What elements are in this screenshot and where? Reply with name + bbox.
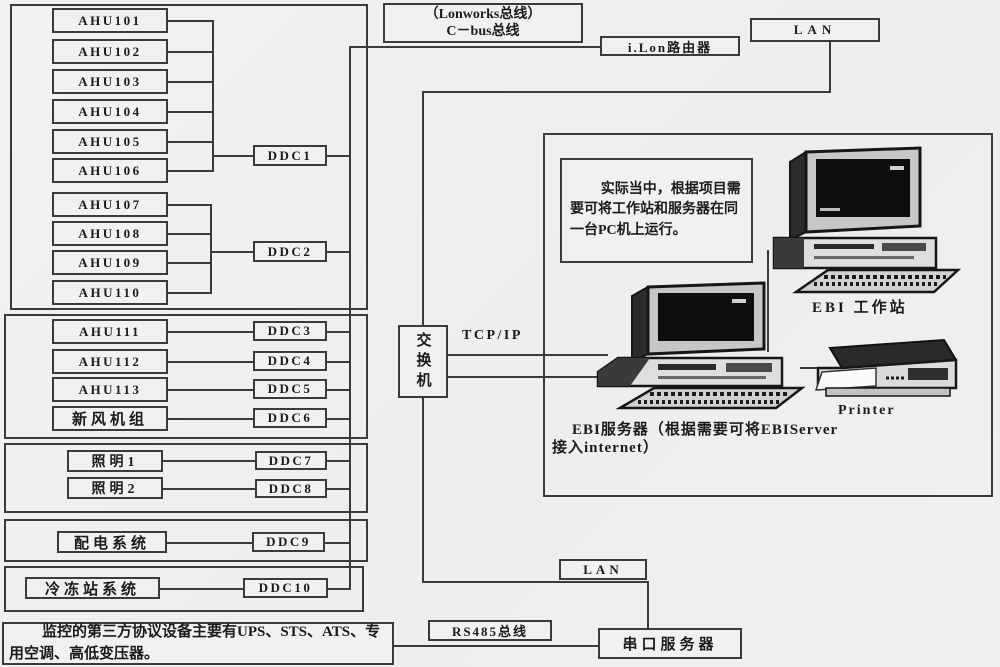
ilon-router-box: i.Lon路由器 — [600, 36, 740, 56]
cbus-label-line2: C－bus总线 — [446, 23, 519, 41]
collector-line-ddc2 — [210, 204, 212, 294]
tcpip-line-1 — [448, 354, 608, 356]
ilon-router-label: i.Lon路由器 — [628, 37, 712, 56]
ddc2-feed-line — [210, 251, 253, 253]
lan-drop-line — [829, 42, 831, 93]
rs485-line — [394, 645, 598, 647]
ahu103-box: AHU103 — [52, 69, 168, 94]
ddc8-label: DDC8 — [269, 481, 314, 497]
ahu103-label: AHU103 — [78, 74, 141, 90]
lonworks-bus-line — [349, 46, 351, 589]
ahu109-label: AHU109 — [78, 255, 141, 271]
connector-line — [327, 460, 351, 462]
connector-line — [168, 331, 253, 333]
third-party-note-text: 监控的第三方协议设备主要有UPS、STS、ATS、专用空调、高低变压器。 — [9, 622, 387, 666]
rs485-bus-box: RS485总线 — [428, 620, 552, 641]
ddc5-label: DDC5 — [268, 381, 313, 397]
connector-line — [327, 389, 351, 391]
workstation-label: EBI 工作站 — [812, 296, 908, 317]
power-distribution-label: 配电系统 — [74, 532, 150, 553]
tcpip-label: TCP/IP — [462, 328, 523, 344]
connector-line — [168, 389, 253, 391]
ahu106-box: AHU106 — [52, 158, 168, 183]
lan-bottom-box: LAN — [559, 559, 647, 580]
ddc1-box: DDC1 — [253, 145, 327, 166]
third-party-note-box: 监控的第三方协议设备主要有UPS、STS、ATS、专用空调、高低变压器。 — [2, 622, 394, 665]
ddc6-label: DDC6 — [268, 410, 313, 426]
ahu108-label: AHU108 — [78, 226, 141, 242]
printer-label: Printer — [838, 403, 896, 419]
ahu111-box: AHU111 — [52, 319, 168, 344]
connector-line — [328, 588, 351, 590]
ahu101-label: AHU101 — [78, 13, 141, 29]
printer-image — [812, 338, 960, 402]
connector-line — [168, 51, 212, 53]
connector-line — [160, 588, 243, 590]
connector-line — [163, 460, 255, 462]
connector-line — [168, 141, 212, 143]
lan-to-switch-line — [422, 91, 831, 93]
collector-line-ddc1 — [212, 20, 214, 172]
ddc1-feed-line — [212, 155, 253, 157]
lan-bottom-label: LAN — [583, 562, 622, 578]
ahu113-box: AHU113 — [52, 377, 168, 402]
serial-server-label: 串口服务器 — [622, 633, 717, 654]
ebi-server-image — [592, 282, 810, 410]
ddc2-label: DDC2 — [268, 244, 313, 260]
serial-server-drop-line — [647, 581, 649, 628]
ahu108-box: AHU108 — [52, 221, 168, 246]
fresh-air-unit-label: 新风机组 — [72, 408, 148, 429]
connector-line — [168, 418, 253, 420]
rs485-bus-label: RS485总线 — [452, 621, 528, 640]
power-distribution-box: 配电系统 — [57, 531, 167, 553]
connector-line — [327, 488, 351, 490]
ebi-workstation-image — [762, 146, 962, 294]
ddc6-box: DDC6 — [253, 408, 327, 428]
ddc10-label: DDC10 — [259, 580, 313, 596]
ahu112-box: AHU112 — [52, 349, 168, 374]
switch-label: 交换机 — [413, 332, 434, 392]
ahu101-box: AHU101 — [52, 8, 168, 33]
connector-line — [168, 20, 212, 22]
ahu105-box: AHU105 — [52, 129, 168, 154]
ddc1-label: DDC1 — [268, 148, 313, 164]
ahu106-label: AHU106 — [78, 163, 141, 179]
ddc8-box: DDC8 — [255, 479, 327, 498]
switch-box: 交换机 — [398, 325, 448, 398]
lonworks-bus-label-line1: （Lonworks总线） — [425, 6, 542, 24]
lan-top-box: LAN — [750, 18, 880, 42]
connector-line — [168, 204, 210, 206]
ddc9-label: DDC9 — [266, 534, 311, 550]
connector-line — [327, 331, 351, 333]
connector-line — [327, 418, 351, 420]
lighting1-box: 照明1 — [67, 450, 163, 472]
connector-line — [168, 292, 210, 294]
bus-to-ilon-line — [349, 46, 602, 48]
ahu104-box: AHU104 — [52, 99, 168, 124]
ahu110-box: AHU110 — [52, 280, 168, 305]
ddc1-bus-line — [327, 155, 351, 157]
connector-line — [168, 233, 210, 235]
connector-line — [168, 170, 212, 172]
lighting1-label: 照明1 — [92, 451, 139, 471]
ddc3-box: DDC3 — [253, 321, 327, 341]
connector-line — [168, 111, 212, 113]
connector-line — [325, 542, 351, 544]
bas-network-diagram: AHU101 AHU102 AHU103 AHU104 AHU105 AHU10… — [0, 0, 1000, 667]
ddc2-box: DDC2 — [253, 241, 327, 262]
chiller-plant-box: 冷冻站系统 — [25, 577, 160, 599]
lighting2-box: 照明2 — [67, 477, 163, 499]
ddc7-label: DDC7 — [269, 453, 314, 469]
ddc10-box: DDC10 — [243, 578, 328, 598]
connector-line — [163, 488, 255, 490]
ahu104-label: AHU104 — [78, 104, 141, 120]
ddc5-box: DDC5 — [253, 379, 327, 399]
ahu102-box: AHU102 — [52, 39, 168, 64]
serial-server-box: 串口服务器 — [598, 628, 742, 659]
lonworks-bus-box: （Lonworks总线） C－bus总线 — [383, 3, 583, 43]
ddc9-box: DDC9 — [252, 532, 325, 552]
ddc7-box: DDC7 — [255, 451, 327, 470]
chiller-plant-label: 冷冻站系统 — [45, 578, 140, 599]
connector-line — [168, 81, 212, 83]
ahu102-label: AHU102 — [78, 44, 141, 60]
connector-line — [168, 361, 253, 363]
ahu109-box: AHU109 — [52, 250, 168, 275]
deployment-note-text: 实际当中，根据项目需要可将工作站和服务器在同一台PC机上运行。 — [570, 180, 743, 241]
ahu110-label: AHU110 — [79, 285, 142, 301]
lighting2-label: 照明2 — [92, 478, 139, 498]
ddc2-bus-line — [327, 251, 351, 253]
ddc3-label: DDC3 — [268, 323, 313, 339]
ahu107-label: AHU107 — [78, 197, 141, 213]
connector-line — [168, 262, 210, 264]
ahu112-label: AHU112 — [79, 354, 142, 370]
fresh-air-unit-box: 新风机组 — [52, 406, 168, 431]
ahu107-box: AHU107 — [52, 192, 168, 217]
connector-line — [167, 542, 252, 544]
connector-line — [327, 361, 351, 363]
deployment-note-box: 实际当中，根据项目需要可将工作站和服务器在同一台PC机上运行。 — [560, 158, 753, 263]
server-caption-line2: 接入internet） — [552, 436, 659, 457]
ahu111-label: AHU111 — [79, 324, 141, 340]
bottom-lan-line — [422, 581, 649, 583]
ahu113-label: AHU113 — [79, 382, 142, 398]
ddc4-box: DDC4 — [253, 351, 327, 371]
ddc4-label: DDC4 — [268, 353, 313, 369]
ahu105-label: AHU105 — [78, 134, 141, 150]
lan-top-label: LAN — [794, 22, 836, 38]
